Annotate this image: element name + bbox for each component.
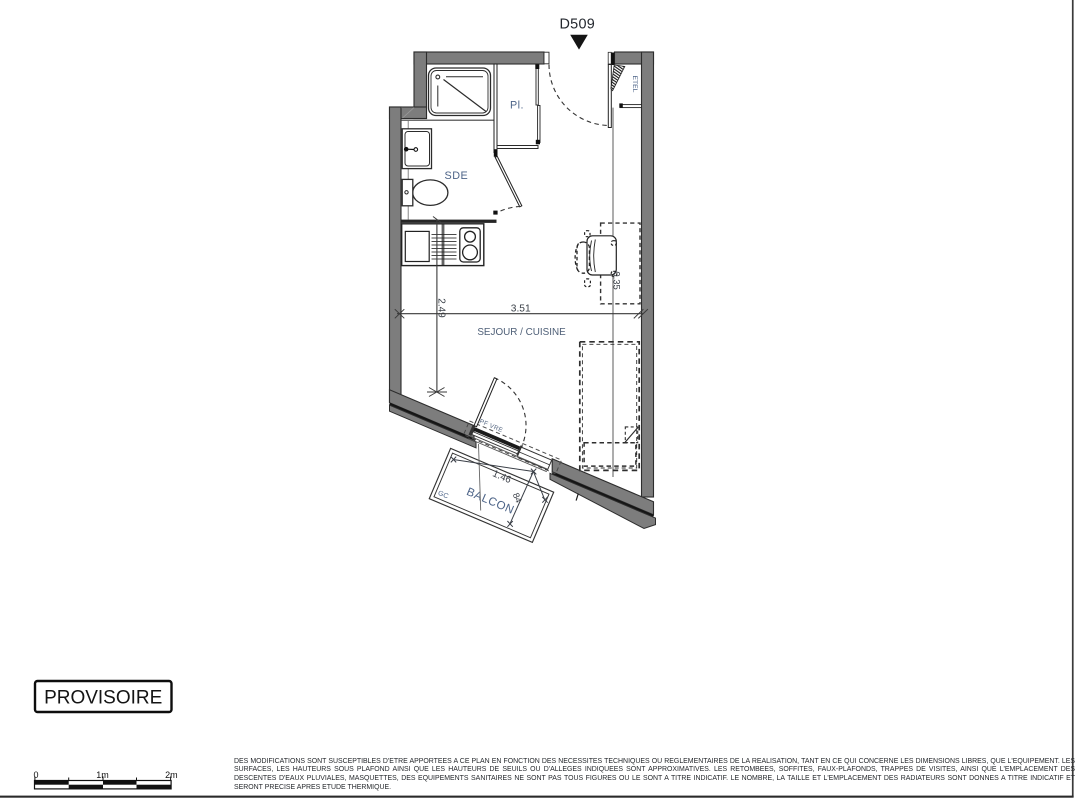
svg-text:0: 0 (34, 770, 39, 780)
svg-text:BALCON: BALCON (465, 485, 517, 517)
svg-text:2m: 2m (165, 770, 178, 780)
svg-text:D509: D509 (559, 17, 595, 33)
svg-text:2.49: 2.49 (435, 298, 446, 318)
svg-text:SDE: SDE (445, 170, 469, 182)
svg-text:PROVISOIRE: PROVISOIRE (44, 688, 162, 709)
svg-text:ETEL: ETEL (631, 76, 638, 93)
svg-text:3.51: 3.51 (511, 304, 531, 315)
svg-text:84: 84 (511, 491, 524, 504)
svg-text:Pl.: Pl. (510, 99, 524, 111)
svg-text:1.46: 1.46 (491, 468, 513, 486)
svg-text:1m: 1m (96, 770, 109, 780)
svg-text:SEJOUR / CUISINE: SEJOUR / CUISINE (477, 327, 566, 338)
svg-text:0.35: 0.35 (611, 271, 622, 290)
